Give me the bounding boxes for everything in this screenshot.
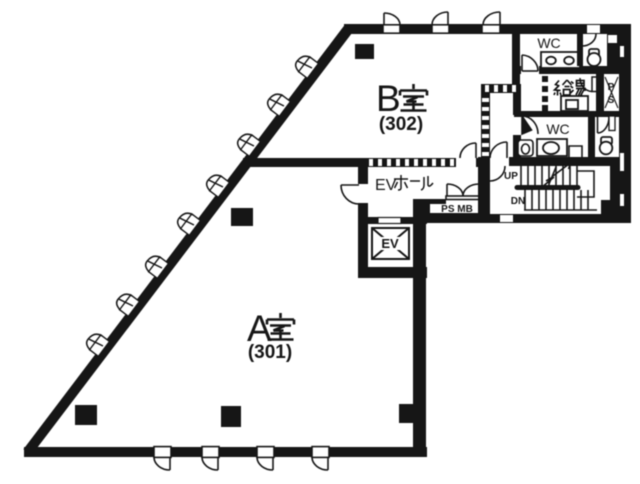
svg-text:EV: EV — [381, 236, 399, 251]
svg-text:EV: EV — [375, 177, 397, 194]
svg-text:UP: UP — [504, 171, 518, 182]
svg-text:S: S — [608, 95, 615, 106]
svg-text:(302): (302) — [379, 114, 423, 135]
svg-text:(301): (301) — [248, 342, 292, 363]
svg-text:P: P — [608, 82, 615, 93]
svg-text:DN: DN — [511, 196, 525, 207]
svg-text:WC: WC — [537, 35, 560, 51]
svg-text:B: B — [376, 78, 401, 119]
svg-text:WC: WC — [546, 121, 569, 137]
